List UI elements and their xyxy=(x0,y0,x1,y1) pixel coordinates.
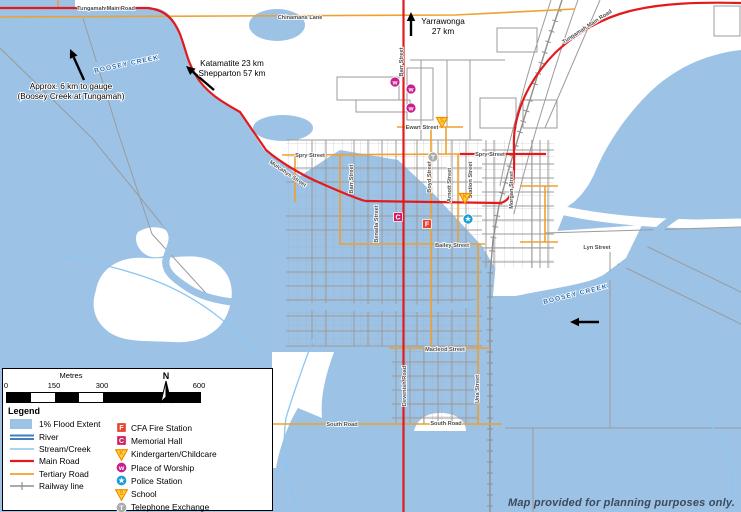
legend-item-label: Place of Worship xyxy=(131,463,194,473)
street-label: Devenish Road xyxy=(402,365,408,406)
north-arrow-icon xyxy=(158,380,174,404)
flood-map: BOOSEY CREEKBOOSEY CREEK Tungamah Main R… xyxy=(0,0,741,512)
svg-text:F: F xyxy=(425,222,430,229)
scalebar-units: Metres xyxy=(60,371,83,380)
street-label: Arnott Street xyxy=(447,168,453,202)
street-label: Ewart Street xyxy=(406,125,439,131)
poi-icon-worship: w xyxy=(390,77,400,87)
scale-tick: 600 xyxy=(193,381,206,390)
street-label: Barr Street xyxy=(399,47,405,76)
legend-item-label: Police Station xyxy=(131,476,182,486)
svg-text:K: K xyxy=(119,450,124,457)
legend-title: Legend xyxy=(8,406,40,416)
legend-item-cfa: FCFA Fire Station xyxy=(115,421,271,434)
memorial-icon: C xyxy=(115,434,128,447)
svg-text:w: w xyxy=(391,79,398,86)
legend-item-worship: wPlace of Worship xyxy=(115,461,271,474)
street-label: Bailey Street xyxy=(435,243,469,249)
poi-icon-memorial: C xyxy=(394,213,403,222)
legend-item-label: Main Road xyxy=(39,456,80,466)
legend-item-flood: 1% Flood Extent xyxy=(9,418,109,430)
poi-icon-worship: w xyxy=(406,84,416,94)
legend-item-label: Tertiary Road xyxy=(39,469,89,479)
flood-swatch xyxy=(9,418,35,430)
north-arrow: N xyxy=(153,372,179,406)
disclaimer-text: Map provided for planning purposes only. xyxy=(508,497,735,509)
svg-text:w: w xyxy=(407,105,414,112)
scale-tick: 150 xyxy=(48,381,61,390)
scalebar-ticks: 0150300600 xyxy=(3,381,213,390)
street-label: Chinamans Lane xyxy=(278,15,323,21)
svg-text:w: w xyxy=(118,465,125,472)
poi-icon-worship: w xyxy=(406,103,416,113)
svg-text:C: C xyxy=(119,437,125,446)
gauge-note: Approx. 6 km to gauge xyxy=(30,82,113,91)
poi-icon-police xyxy=(463,214,473,224)
legend-item-label: River xyxy=(39,432,59,442)
main-road-swatch xyxy=(9,455,35,467)
legend-item-label: Railway line xyxy=(39,481,84,491)
tertiary-road-swatch xyxy=(9,468,35,480)
scale-tick: 0 xyxy=(4,381,8,390)
legend-item-river: River xyxy=(9,430,109,442)
street-label: Station Street xyxy=(468,162,474,199)
legend-item-stream: Stream/Creek xyxy=(9,443,109,455)
cfa-icon: F xyxy=(115,421,128,434)
yarrawonga-note: 27 km xyxy=(432,27,454,36)
stream-swatch xyxy=(9,443,35,455)
katamatite-note: Shepparton 57 km xyxy=(199,69,266,78)
svg-text:K: K xyxy=(463,195,468,201)
legend-item-railway: Railway line xyxy=(9,480,109,492)
street-label: South Road xyxy=(430,421,462,427)
svg-text:C: C xyxy=(395,215,400,222)
legend-item-telephone: TTelephone Exchange xyxy=(115,501,271,512)
street-label: South Road xyxy=(326,422,358,428)
legend-item-main-road: Main Road xyxy=(9,455,109,467)
kindergarten-icon: K xyxy=(115,448,128,461)
street-label: Tungamah Main Road xyxy=(77,6,135,12)
street-label: Una Street xyxy=(475,375,481,403)
legend-poi-items: FCFA Fire StationCMemorial HallKKinderga… xyxy=(115,421,271,512)
legend-item-police: Police Station xyxy=(115,474,271,487)
street-label: Boyd Street xyxy=(427,161,433,193)
svg-text:S: S xyxy=(440,119,444,125)
scale-tick: 300 xyxy=(96,381,109,390)
yarrawonga-note: Yarrawonga xyxy=(421,17,465,26)
school-icon: S xyxy=(115,488,128,501)
street-label: Barr Street xyxy=(349,164,355,193)
telephone-icon: T xyxy=(115,501,128,512)
legend-item-label: Stream/Creek xyxy=(39,444,91,454)
north-label: N xyxy=(153,372,179,380)
poi-icon-telephone: T xyxy=(428,152,438,162)
legend-item-label: Telephone Exchange xyxy=(131,502,209,512)
legend-item-memorial: CMemorial Hall xyxy=(115,434,271,447)
svg-text:w: w xyxy=(407,86,414,93)
street-label: Lyn Street xyxy=(583,245,610,251)
legend-item-label: 1% Flood Extent xyxy=(39,419,100,429)
legend-item-label: CFA Fire Station xyxy=(131,423,192,433)
street-label: Morgan Street xyxy=(509,171,515,209)
legend-flood-items: 1% Flood ExtentRiverStream/CreekMain Roa… xyxy=(9,418,109,492)
railway-swatch xyxy=(9,480,35,492)
worship-icon: w xyxy=(115,461,128,474)
legend-item-label: Memorial Hall xyxy=(131,436,182,446)
legend-item-school: SSchool xyxy=(115,487,271,500)
legend-item-label: Kindergarten/Childcare xyxy=(131,449,217,459)
gauge-note: (Boosey Creek at Tungamah) xyxy=(18,92,125,101)
svg-text:T: T xyxy=(431,154,435,161)
legend-item-label: School xyxy=(131,489,157,499)
svg-text:S: S xyxy=(119,490,123,497)
legend-item-kindergarten: KKindergarten/Childcare xyxy=(115,448,271,461)
street-label: Macleod Street xyxy=(425,347,465,353)
river-swatch xyxy=(9,431,35,443)
svg-text:F: F xyxy=(119,423,124,432)
police-icon xyxy=(115,474,128,487)
legend-panel: Metres 0150300600 N Legend 1% Flood Exte… xyxy=(2,368,273,511)
street-label: Benalla Street xyxy=(374,205,380,242)
street-label: Spry Street xyxy=(475,152,505,158)
katamatite-note: Katamatite 23 km xyxy=(200,59,264,68)
legend-item-tertiary-road: Tertiary Road xyxy=(9,468,109,480)
poi-icon-cfa: F xyxy=(423,220,432,229)
street-label: Spry Street xyxy=(295,153,325,159)
